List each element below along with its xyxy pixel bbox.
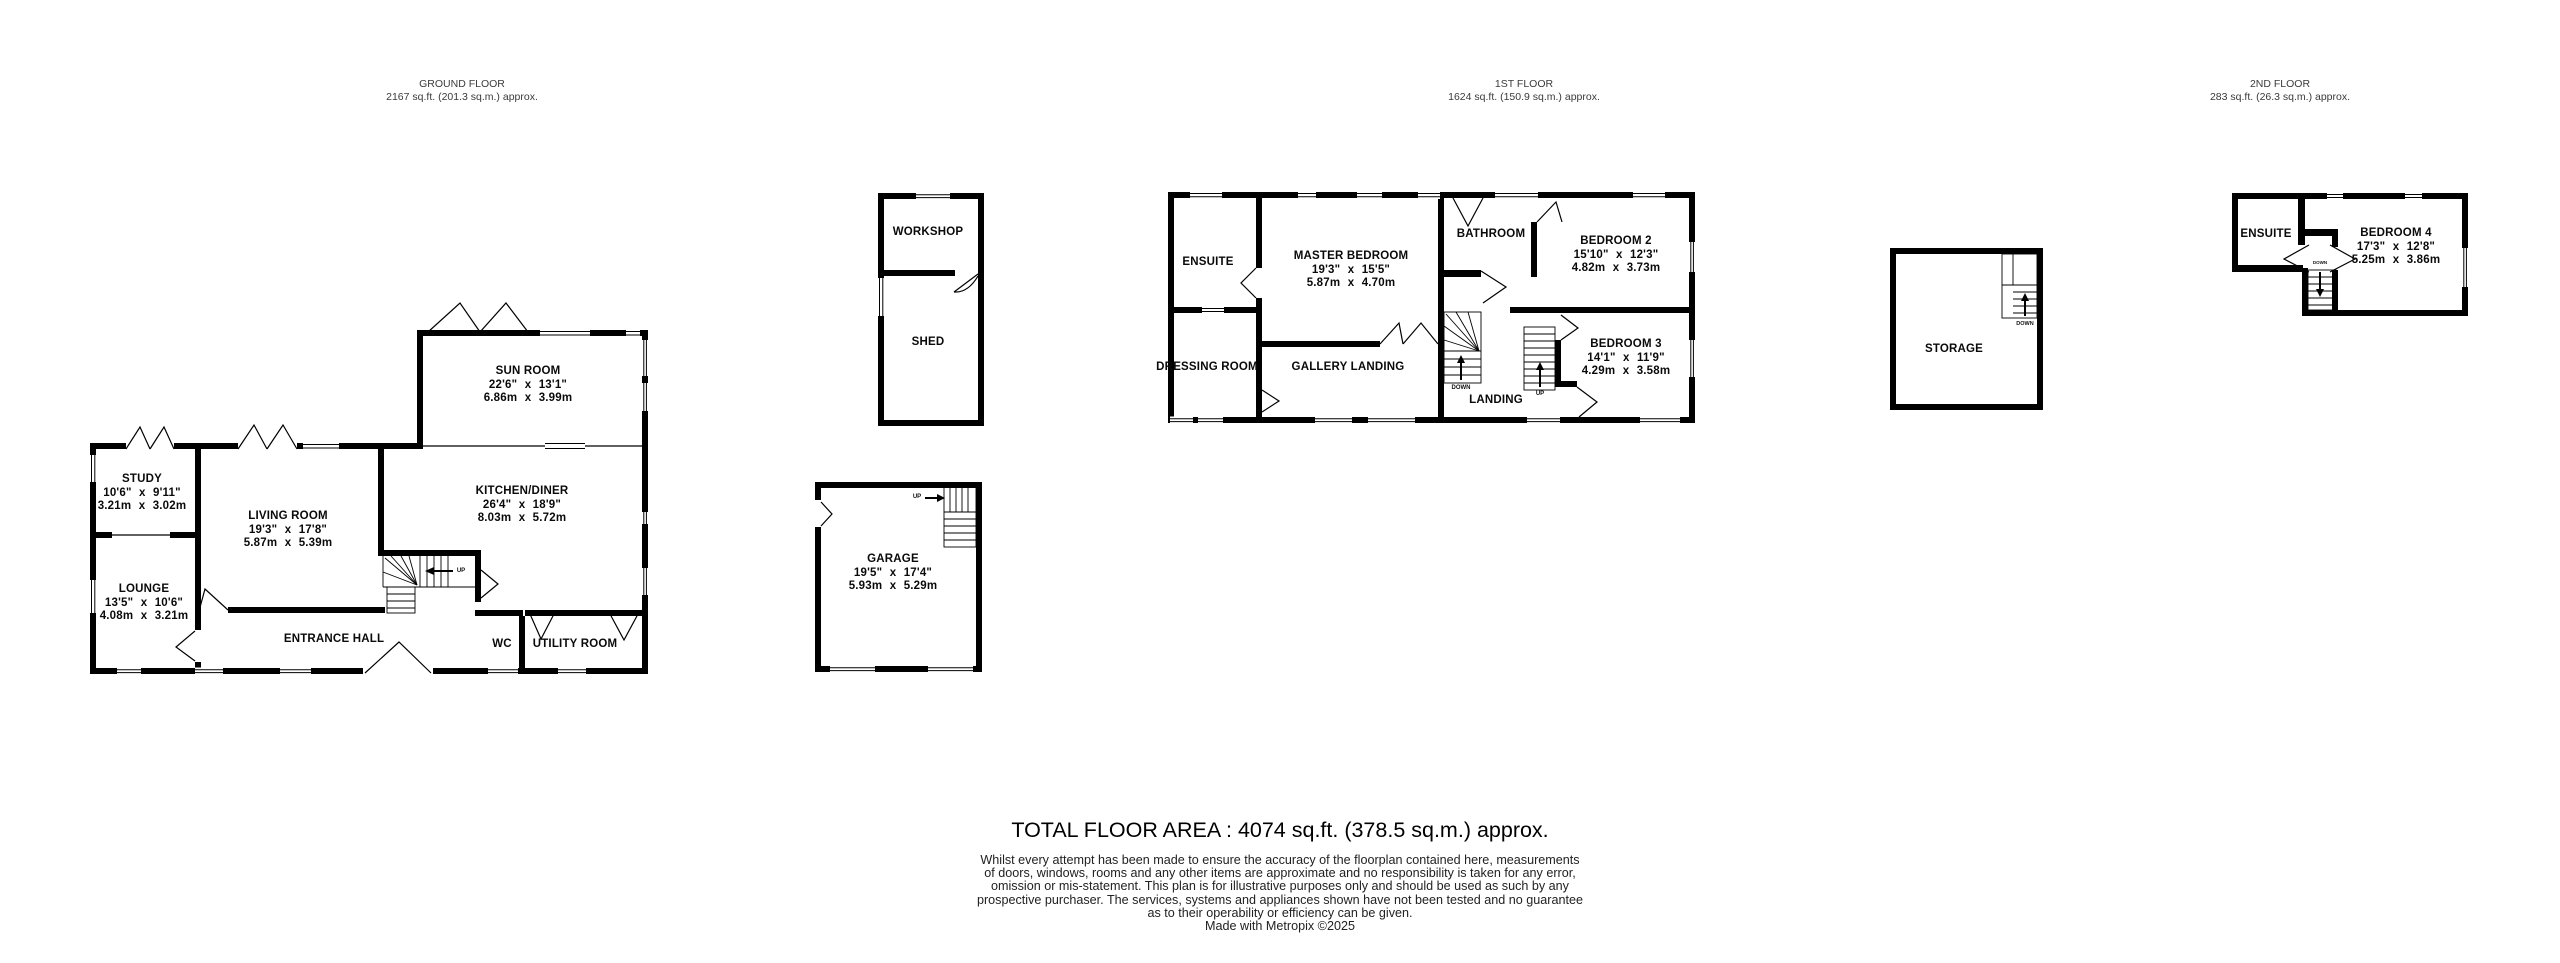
- ground-floor-area: 2167 sq.ft. (201.3 sq.m.) approx.: [386, 91, 538, 104]
- room-dims-imperial: 26'4" x 18'9": [476, 499, 569, 513]
- room-name: LANDING: [1469, 394, 1523, 408]
- floorplan-page: GROUND FLOOR 2167 sq.ft. (201.3 sq.m.) a…: [0, 0, 2560, 963]
- second-floor-down-label: DOWN: [2313, 260, 2327, 265]
- first-floor-plan: [1168, 191, 1696, 424]
- first-floor-header: 1ST FLOOR 1624 sq.ft. (150.9 sq.m.) appr…: [1448, 78, 1600, 103]
- room-label-utility-room: UTILITY ROOM: [533, 638, 618, 652]
- room-name: ENSUITE: [1182, 256, 1233, 270]
- room-dims-metric: 4.29m x 3.58m: [1582, 365, 1671, 379]
- room-label-ensuite-second: ENSUITE: [2240, 228, 2291, 242]
- room-name: BEDROOM 2: [1572, 235, 1661, 249]
- room-dims-metric: 4.08m x 3.21m: [100, 610, 189, 624]
- room-dims-imperial: 22'6" x 13'1": [484, 379, 573, 393]
- room-name: SHED: [912, 336, 945, 350]
- storage-stairs-icon: [2002, 254, 2037, 318]
- room-dims-imperial: 13'5" x 10'6": [100, 597, 189, 611]
- room-name: KITCHEN/DINER: [476, 485, 569, 499]
- room-label-master-bedroom: MASTER BEDROOM 19'3" x 15'5" 5.87m x 4.7…: [1294, 250, 1409, 291]
- room-dims-metric: 5.25m x 3.86m: [2352, 254, 2441, 268]
- ground-floor-title: GROUND FLOOR: [386, 78, 538, 91]
- room-label-living-room: LIVING ROOM 19'3" x 17'8" 5.87m x 5.39m: [244, 510, 333, 551]
- ground-floor-header: GROUND FLOOR 2167 sq.ft. (201.3 sq.m.) a…: [386, 78, 538, 103]
- room-name: GARAGE: [849, 553, 938, 567]
- second-floor-title: 2ND FLOOR: [2210, 78, 2350, 91]
- room-name: GALLERY LANDING: [1292, 361, 1405, 375]
- disclaimer: Whilst every attempt has been made to en…: [0, 854, 2560, 920]
- room-dims-metric: 5.93m x 5.29m: [849, 580, 938, 594]
- total-floor-area: TOTAL FLOOR AREA : 4074 sq.ft. (378.5 sq…: [0, 818, 2560, 843]
- room-label-garage: GARAGE 19'5" x 17'4" 5.93m x 5.29m: [849, 553, 938, 594]
- first-floor-stairs-up-icon: [1524, 327, 1555, 390]
- credit-line: Made with Metropix ©2025: [0, 920, 2560, 933]
- room-dims-imperial: 19'3" x 15'5": [1294, 264, 1409, 278]
- room-name: LOUNGE: [100, 583, 189, 597]
- ground-stairs-icon: [383, 556, 481, 613]
- room-name: SUN ROOM: [484, 365, 573, 379]
- second-floor-stairs-icon: [2308, 270, 2336, 310]
- storage-plan: [1890, 248, 2043, 410]
- room-label-sun-room: SUN ROOM 22'6" x 13'1" 6.86m x 3.99m: [484, 365, 573, 406]
- room-name: LIVING ROOM: [244, 510, 333, 524]
- first-floor-area: 1624 sq.ft. (150.9 sq.m.) approx.: [1448, 91, 1600, 104]
- disclaimer-line: omission or mis-statement. This plan is …: [0, 880, 2560, 893]
- room-dims-metric: 5.87m x 5.39m: [244, 537, 333, 551]
- room-label-kitchen-diner: KITCHEN/DINER 26'4" x 18'9" 8.03m x 5.72…: [476, 485, 569, 526]
- first-floor-down-label: DOWN: [1452, 385, 1471, 391]
- room-label-entrance-hall: ENTRANCE HALL: [284, 633, 384, 647]
- room-name: WC: [492, 638, 512, 652]
- room-name: STUDY: [98, 473, 187, 487]
- room-label-landing: LANDING: [1469, 394, 1523, 408]
- room-label-storage: STORAGE: [1925, 343, 1983, 357]
- disclaimer-line: prospective purchaser. The services, sys…: [0, 894, 2560, 907]
- room-label-bathroom: BATHROOM: [1457, 228, 1525, 242]
- footer: TOTAL FLOOR AREA : 4074 sq.ft. (378.5 sq…: [0, 818, 2560, 933]
- room-label-bedroom4: BEDROOM 4 17'3" x 12'8" 5.25m x 3.86m: [2352, 227, 2441, 268]
- room-dims-metric: 8.03m x 5.72m: [476, 512, 569, 526]
- second-floor-area: 283 sq.ft. (26.3 sq.m.) approx.: [2210, 91, 2350, 104]
- room-name: DRESSING ROOM: [1156, 361, 1258, 375]
- garage-stairs-icon: [925, 486, 976, 547]
- room-name: ENSUITE: [2240, 228, 2291, 242]
- room-label-lounge: LOUNGE 13'5" x 10'6" 4.08m x 3.21m: [100, 583, 189, 624]
- first-floor-stairs-down-icon: [1444, 312, 1481, 383]
- room-label-ensuite-first: ENSUITE: [1182, 256, 1233, 270]
- room-name: BEDROOM 3: [1582, 338, 1671, 352]
- room-dims-metric: 4.82m x 3.73m: [1572, 262, 1661, 276]
- first-floor-up-label: UP: [1536, 391, 1544, 397]
- garage-stairs-up-label: UP: [913, 494, 921, 500]
- ground-stairs-up-label: UP: [457, 568, 465, 574]
- room-label-gallery-landing: GALLERY LANDING: [1292, 361, 1405, 375]
- room-label-dressing-room: DRESSING ROOM: [1156, 361, 1258, 375]
- room-dims-metric: 3.21m x 3.02m: [98, 500, 187, 514]
- room-name: BEDROOM 4: [2352, 227, 2441, 241]
- room-label-bedroom3: BEDROOM 3 14'1" x 11'9" 4.29m x 3.58m: [1582, 338, 1671, 379]
- room-dims-imperial: 19'3" x 17'8": [244, 524, 333, 538]
- room-dims-imperial: 10'6" x 9'11": [98, 487, 187, 501]
- room-name: WORKSHOP: [893, 226, 964, 240]
- room-name: BATHROOM: [1457, 228, 1525, 242]
- room-label-shed: SHED: [912, 336, 945, 350]
- room-dims-imperial: 17'3" x 12'8": [2352, 241, 2441, 255]
- room-label-workshop: WORKSHOP: [893, 226, 964, 240]
- room-dims-metric: 5.87m x 4.70m: [1294, 277, 1409, 291]
- room-label-bedroom2: BEDROOM 2 15'10" x 12'3" 4.82m x 3.73m: [1572, 235, 1661, 276]
- first-floor-title: 1ST FLOOR: [1448, 78, 1600, 91]
- room-name: MASTER BEDROOM: [1294, 250, 1409, 264]
- room-dims-imperial: 15'10" x 12'3": [1572, 249, 1661, 263]
- room-label-study: STUDY 10'6" x 9'11" 3.21m x 3.02m: [98, 473, 187, 514]
- room-dims-metric: 6.86m x 3.99m: [484, 392, 573, 406]
- room-name: ENTRANCE HALL: [284, 633, 384, 647]
- room-name: UTILITY ROOM: [533, 638, 618, 652]
- second-floor-header: 2ND FLOOR 283 sq.ft. (26.3 sq.m.) approx…: [2210, 78, 2350, 103]
- room-label-wc: WC: [492, 638, 512, 652]
- room-dims-imperial: 19'5" x 17'4": [849, 567, 938, 581]
- storage-down-label: DOWN: [2016, 321, 2033, 327]
- room-dims-imperial: 14'1" x 11'9": [1582, 352, 1671, 366]
- room-name: STORAGE: [1925, 343, 1983, 357]
